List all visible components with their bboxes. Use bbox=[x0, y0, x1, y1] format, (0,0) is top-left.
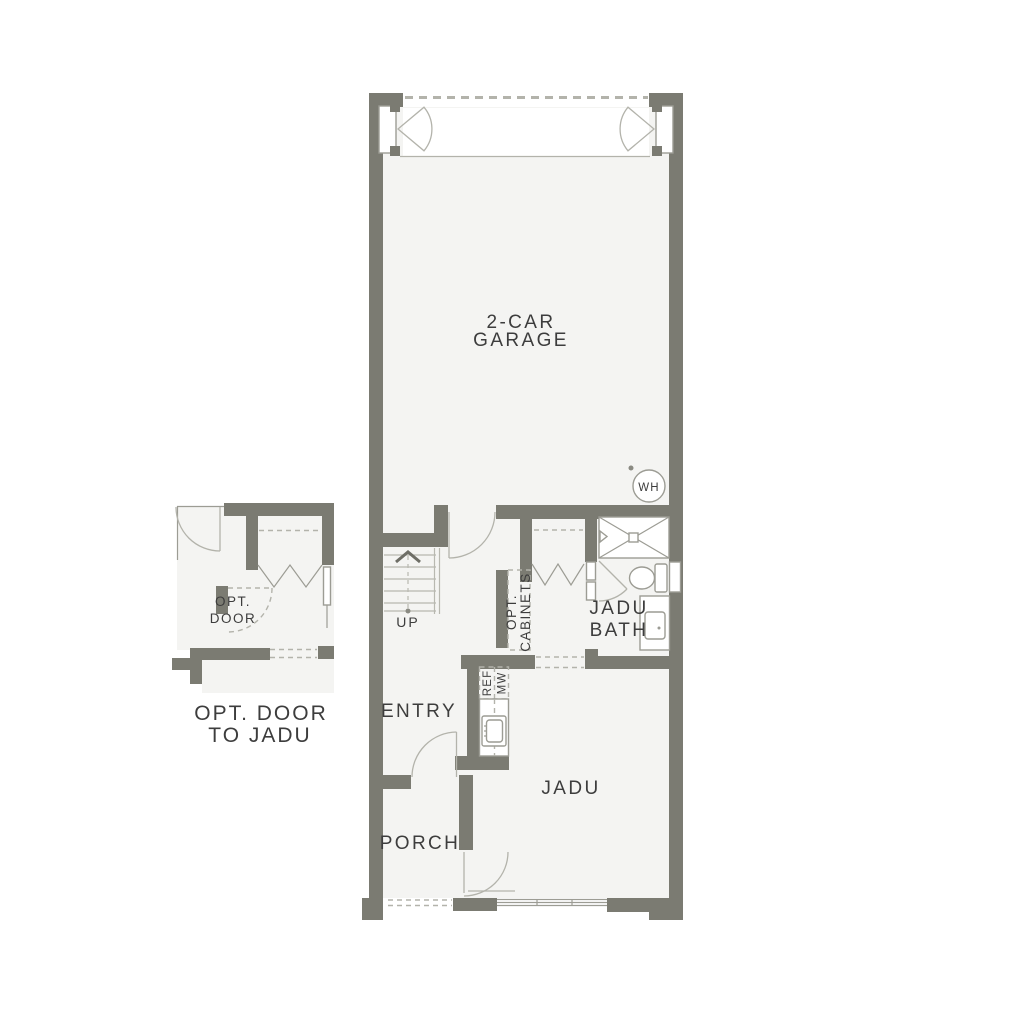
garage-door-jamb-right bbox=[656, 106, 673, 153]
floor-plan-page: WH UP OPT. bbox=[0, 0, 1024, 1024]
garage-door-jamb-left bbox=[379, 106, 396, 153]
shower-icon bbox=[599, 517, 669, 558]
detail-caption-line2: TO JADU bbox=[208, 724, 311, 747]
microwave-label: MW bbox=[497, 672, 509, 695]
kitchenette: REF MW bbox=[480, 667, 509, 756]
kitchen-sink-icon bbox=[482, 716, 506, 746]
toilet-icon bbox=[630, 564, 668, 592]
porch-edge bbox=[388, 900, 452, 906]
garage-label-line2: GARAGE bbox=[473, 330, 569, 351]
detail-plan-opt-door: OPT. DOOR OPT. DOOR TO JADU bbox=[172, 503, 334, 747]
opt-cabinets-label-1: OPT. bbox=[504, 594, 519, 630]
floor-plan-drawing: WH UP OPT. bbox=[0, 0, 1024, 1024]
porch-label: PORCH bbox=[380, 833, 461, 854]
entry-label: ENTRY bbox=[381, 701, 457, 722]
opt-door-label-line2: DOOR bbox=[210, 611, 257, 626]
water-heater-label: WH bbox=[638, 482, 660, 494]
main-floor-plan: WH UP OPT. bbox=[362, 93, 683, 920]
jadu-bath-label-line1: JADU bbox=[589, 598, 648, 619]
plumbing-niche bbox=[670, 562, 681, 592]
opt-cabinets-label-2: CABINETS bbox=[518, 572, 533, 652]
jadu-label: JADU bbox=[541, 778, 600, 799]
opt-door-label-line1: OPT. bbox=[215, 594, 251, 609]
refrigerator-label: REF bbox=[482, 670, 494, 697]
jadu-window bbox=[497, 900, 607, 906]
detail-caption-line1: OPT. DOOR bbox=[194, 702, 328, 725]
garage-apron bbox=[403, 108, 649, 156]
jadu-bath-label-line2: BATH bbox=[590, 620, 649, 641]
main-floor-fill bbox=[383, 107, 669, 898]
up-label: UP bbox=[396, 614, 419, 630]
